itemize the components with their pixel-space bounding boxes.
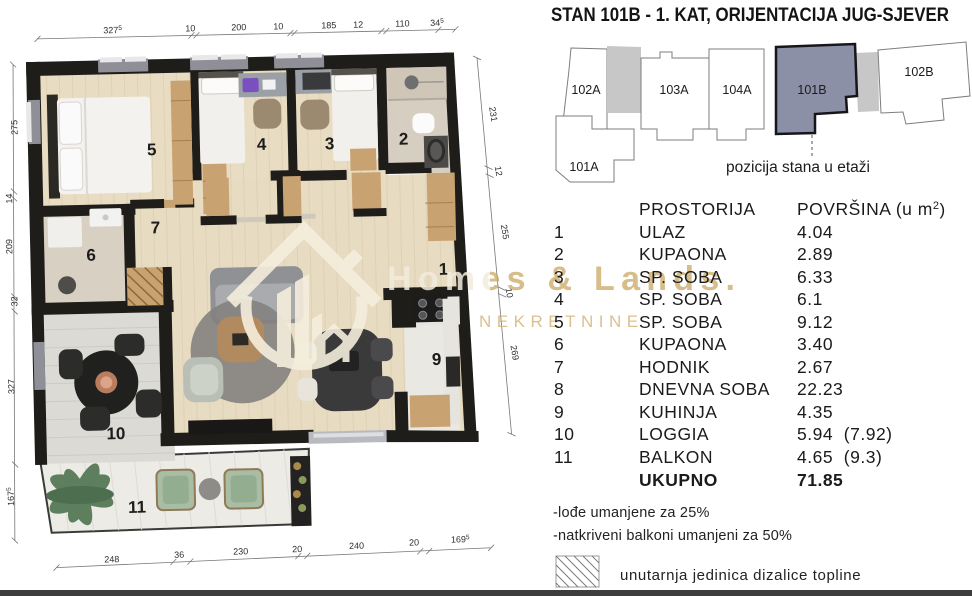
svg-text:32: 32 — [9, 296, 19, 306]
svg-text:12: 12 — [493, 165, 504, 177]
svg-text:SP. SOBA: SP. SOBA — [639, 289, 722, 309]
svg-text:SP. SOBA: SP. SOBA — [639, 267, 722, 287]
svg-text:STAN 101B - 1. KAT, ORIJENTACI: STAN 101B - 1. KAT, ORIJENTACIJA JUG-SJE… — [551, 4, 949, 26]
svg-text:230: 230 — [233, 546, 248, 556]
svg-text:20: 20 — [292, 544, 302, 554]
svg-text:4: 4 — [257, 135, 267, 154]
svg-text:-lođe umanjene za 25%: -lođe umanjene za 25% — [553, 505, 710, 521]
svg-text:DNEVNA SOBA: DNEVNA SOBA — [639, 379, 770, 399]
svg-text:2.67: 2.67 — [797, 357, 833, 377]
svg-text:9: 9 — [554, 402, 564, 422]
svg-text:ULAZ: ULAZ — [639, 222, 686, 242]
svg-text:104A: 104A — [722, 83, 752, 97]
svg-text:22.23: 22.23 — [797, 379, 843, 399]
svg-text:275: 275 — [9, 120, 19, 135]
svg-text:PROSTORIJA: PROSTORIJA — [639, 199, 756, 219]
svg-text:2: 2 — [554, 244, 564, 264]
svg-text:7: 7 — [151, 218, 161, 237]
svg-text:KUPAONA: KUPAONA — [639, 334, 727, 354]
svg-text:102A: 102A — [571, 83, 601, 97]
svg-text:101A: 101A — [569, 160, 599, 174]
svg-text:2.89: 2.89 — [797, 244, 833, 264]
svg-text:36: 36 — [174, 550, 184, 560]
svg-text:6.33: 6.33 — [797, 267, 833, 287]
svg-text:1: 1 — [554, 222, 564, 242]
svg-text:UKUPNO: UKUPNO — [639, 470, 718, 490]
svg-text:6: 6 — [554, 334, 564, 354]
svg-text:20: 20 — [409, 537, 419, 547]
svg-text:unutarnja jedinica dizalice to: unutarnja jedinica dizalice topline — [620, 567, 861, 584]
svg-text:5: 5 — [147, 140, 157, 159]
svg-text:6: 6 — [86, 246, 96, 265]
svg-text:8: 8 — [554, 379, 564, 399]
svg-text:5.94 (7.92): 5.94 (7.92) — [797, 424, 893, 444]
svg-text:4.65 (9.3): 4.65 (9.3) — [797, 447, 882, 467]
svg-text:14: 14 — [4, 193, 14, 203]
svg-text:3: 3 — [554, 267, 564, 287]
svg-text:200: 200 — [231, 22, 246, 32]
svg-text:327: 327 — [6, 379, 16, 394]
svg-text:101B: 101B — [797, 83, 826, 97]
svg-text:248: 248 — [104, 554, 119, 564]
svg-text:-natkriveni balkoni umanjeni z: -natkriveni balkoni umanjeni za 50% — [553, 528, 792, 544]
svg-text:4.04: 4.04 — [797, 222, 833, 242]
svg-text:5: 5 — [554, 312, 564, 332]
svg-text:9.12: 9.12 — [797, 312, 833, 332]
svg-text:185: 185 — [321, 20, 336, 30]
svg-text:10: 10 — [554, 424, 574, 444]
svg-text:10: 10 — [106, 424, 125, 443]
svg-text:4: 4 — [554, 289, 564, 309]
svg-text:9: 9 — [432, 350, 442, 369]
svg-text:POVRŠINA (u m2): POVRŠINA (u m2) — [797, 198, 946, 219]
svg-text:71.85: 71.85 — [797, 470, 843, 490]
svg-text:3: 3 — [325, 134, 335, 153]
svg-text:6.1: 6.1 — [797, 289, 823, 309]
svg-text:KUPAONA: KUPAONA — [639, 244, 727, 264]
svg-text:11: 11 — [128, 498, 146, 517]
svg-text:SP. SOBA: SP. SOBA — [639, 312, 722, 332]
svg-text:11: 11 — [554, 447, 573, 467]
svg-text:3.40: 3.40 — [797, 334, 833, 354]
svg-text:10: 10 — [273, 21, 283, 31]
svg-text:BALKON: BALKON — [639, 447, 713, 467]
svg-text:2: 2 — [399, 130, 409, 149]
svg-text:LOGGIA: LOGGIA — [639, 424, 709, 444]
svg-text:110: 110 — [395, 18, 410, 28]
svg-text:7: 7 — [554, 357, 564, 377]
svg-text:HODNIK: HODNIK — [639, 357, 710, 377]
svg-text:pozicija stana u etaži: pozicija stana u etaži — [726, 159, 870, 176]
svg-text:10: 10 — [185, 23, 195, 33]
svg-text:4.35: 4.35 — [797, 402, 833, 422]
svg-text:102B: 102B — [904, 65, 933, 79]
svg-text:KUHINJA: KUHINJA — [639, 402, 717, 422]
svg-text:103A: 103A — [659, 83, 689, 97]
svg-text:209: 209 — [4, 239, 14, 254]
svg-text:12: 12 — [353, 19, 363, 29]
svg-text:240: 240 — [349, 541, 364, 551]
